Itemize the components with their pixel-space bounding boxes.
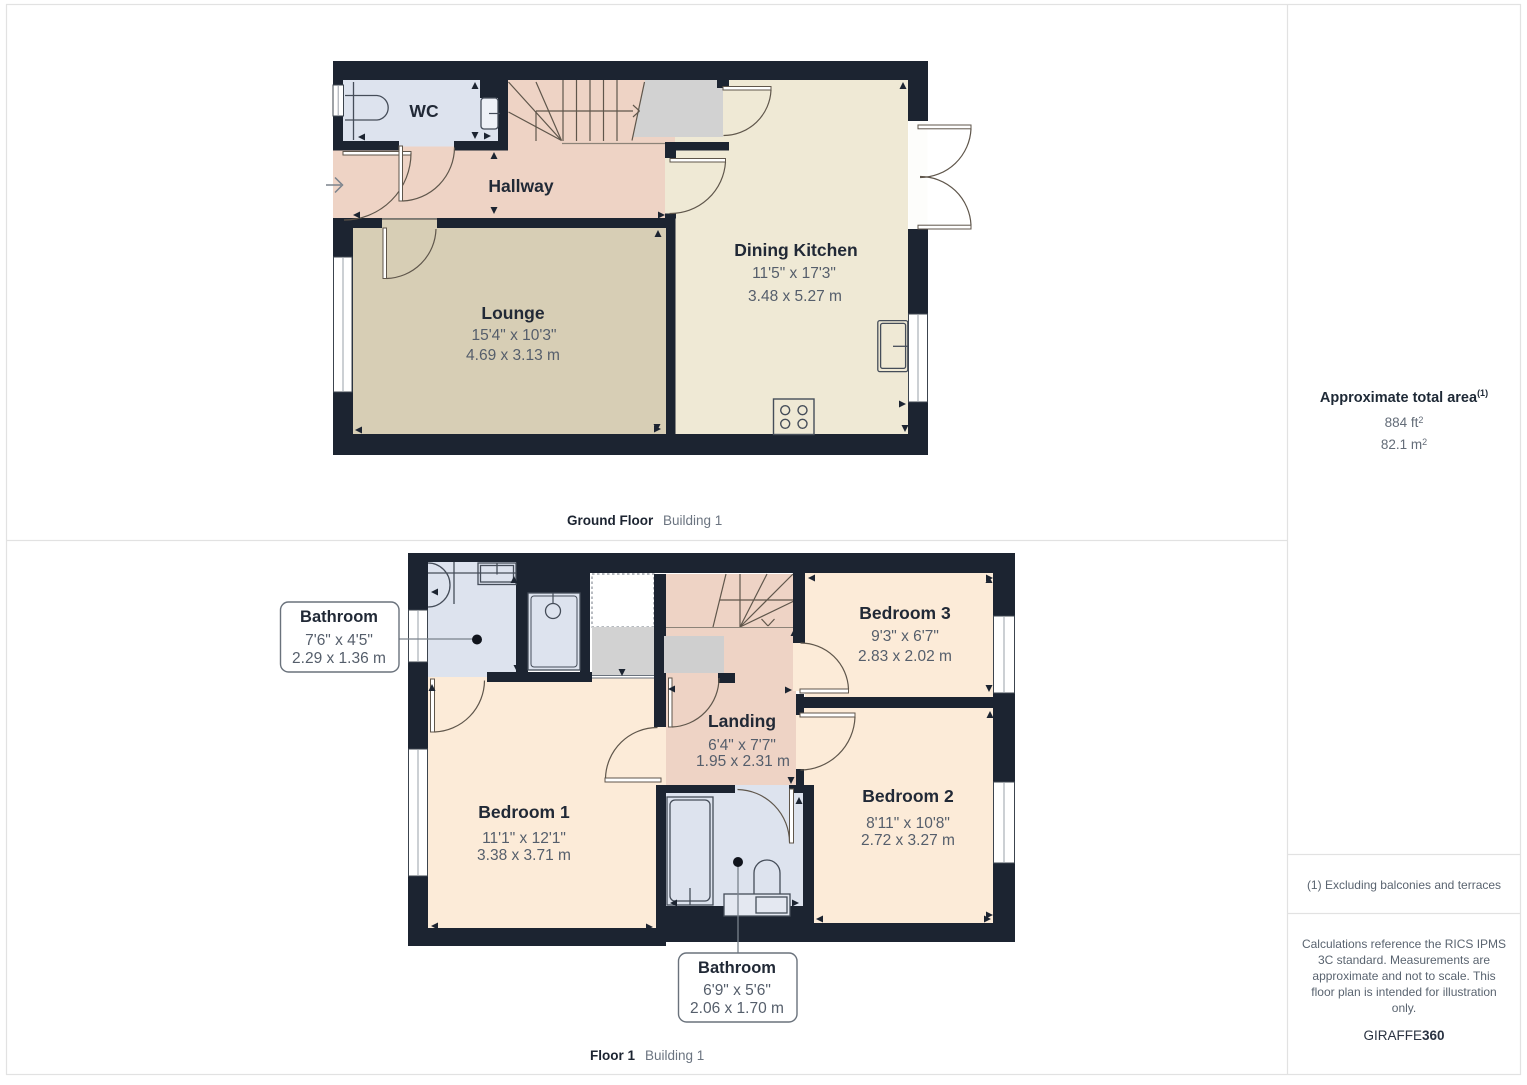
svg-text:7'6" x 4'5": 7'6" x 4'5" xyxy=(305,632,373,649)
svg-text:WC: WC xyxy=(409,101,439,121)
svg-text:Calculations reference the RIC: Calculations reference the RICS IPMS xyxy=(1302,937,1506,951)
svg-text:Bedroom 1: Bedroom 1 xyxy=(478,802,570,822)
svg-text:6'9" x 5'6": 6'9" x 5'6" xyxy=(703,982,771,999)
svg-text:11'1" x 12'1": 11'1" x 12'1" xyxy=(482,830,566,847)
svg-text:Building 1: Building 1 xyxy=(663,513,722,528)
svg-text:(1) Excluding balconies and te: (1) Excluding balconies and terraces xyxy=(1307,878,1501,892)
svg-text:Dining Kitchen: Dining Kitchen xyxy=(734,240,857,260)
svg-text:2.83 x 2.02 m: 2.83 x 2.02 m xyxy=(858,648,952,665)
svg-text:2.72 x 3.27 m: 2.72 x 3.27 m xyxy=(861,832,955,849)
svg-text:2.29 x 1.36 m: 2.29 x 1.36 m xyxy=(292,650,386,667)
svg-text:only.: only. xyxy=(1392,1001,1416,1015)
svg-text:2.06 x 1.70 m: 2.06 x 1.70 m xyxy=(690,1000,784,1017)
svg-text:4.69 x 3.13 m: 4.69 x 3.13 m xyxy=(466,347,560,364)
svg-text:Building 1: Building 1 xyxy=(645,1048,704,1063)
svg-text:floor plan is intended for ill: floor plan is intended for illustration xyxy=(1311,985,1496,999)
svg-text:6'4" x 7'7": 6'4" x 7'7" xyxy=(708,737,776,754)
svg-text:GIRAFFE360: GIRAFFE360 xyxy=(1363,1028,1444,1043)
svg-text:1.95 x 2.31 m: 1.95 x 2.31 m xyxy=(696,753,790,770)
svg-text:Floor 1: Floor 1 xyxy=(590,1048,635,1063)
svg-text:Bathroom: Bathroom xyxy=(698,959,776,977)
svg-text:Approximate total area(1): Approximate total area(1) xyxy=(1320,388,1488,406)
svg-text:Bedroom 3: Bedroom 3 xyxy=(859,603,951,623)
svg-text:Hallway: Hallway xyxy=(488,176,553,196)
svg-text:approximate and not to scale.: approximate and not to scale. This xyxy=(1312,969,1495,983)
svg-text:8'11" x 10'8": 8'11" x 10'8" xyxy=(866,815,950,832)
svg-text:Bedroom 2: Bedroom 2 xyxy=(862,786,954,806)
svg-text:Ground Floor: Ground Floor xyxy=(567,513,654,528)
svg-text:884 ft2: 884 ft2 xyxy=(1385,415,1424,430)
svg-text:11'5" x 17'3": 11'5" x 17'3" xyxy=(752,265,836,282)
svg-text:15'4" x 10'3": 15'4" x 10'3" xyxy=(471,327,556,344)
svg-text:3C standard. Measurements are: 3C standard. Measurements are xyxy=(1318,953,1490,967)
svg-text:3.38 x 3.71 m: 3.38 x 3.71 m xyxy=(477,847,571,864)
svg-text:Lounge: Lounge xyxy=(481,303,544,323)
svg-text:Landing: Landing xyxy=(708,711,776,731)
svg-text:3.48 x 5.27 m: 3.48 x 5.27 m xyxy=(748,288,842,305)
svg-text:82.1 m2: 82.1 m2 xyxy=(1381,437,1427,452)
svg-text:9'3" x 6'7": 9'3" x 6'7" xyxy=(871,628,939,645)
svg-text:Bathroom: Bathroom xyxy=(300,608,378,626)
